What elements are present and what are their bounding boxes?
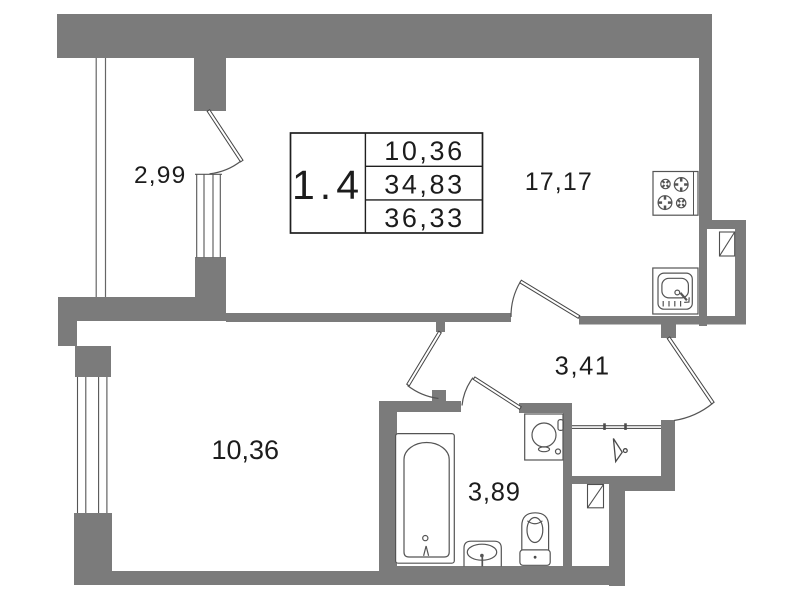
svg-text:2,99: 2,99: [134, 162, 186, 189]
svg-text:1.4: 1.4: [292, 162, 364, 208]
svg-text:34,83: 34,83: [384, 170, 465, 200]
svg-text:10,36: 10,36: [384, 136, 465, 166]
svg-text:17,17: 17,17: [525, 168, 593, 196]
svg-text:3,41: 3,41: [555, 353, 611, 381]
svg-text:3,89: 3,89: [468, 479, 521, 507]
svg-text:10,36: 10,36: [212, 435, 280, 465]
svg-text:36,33: 36,33: [384, 203, 465, 233]
